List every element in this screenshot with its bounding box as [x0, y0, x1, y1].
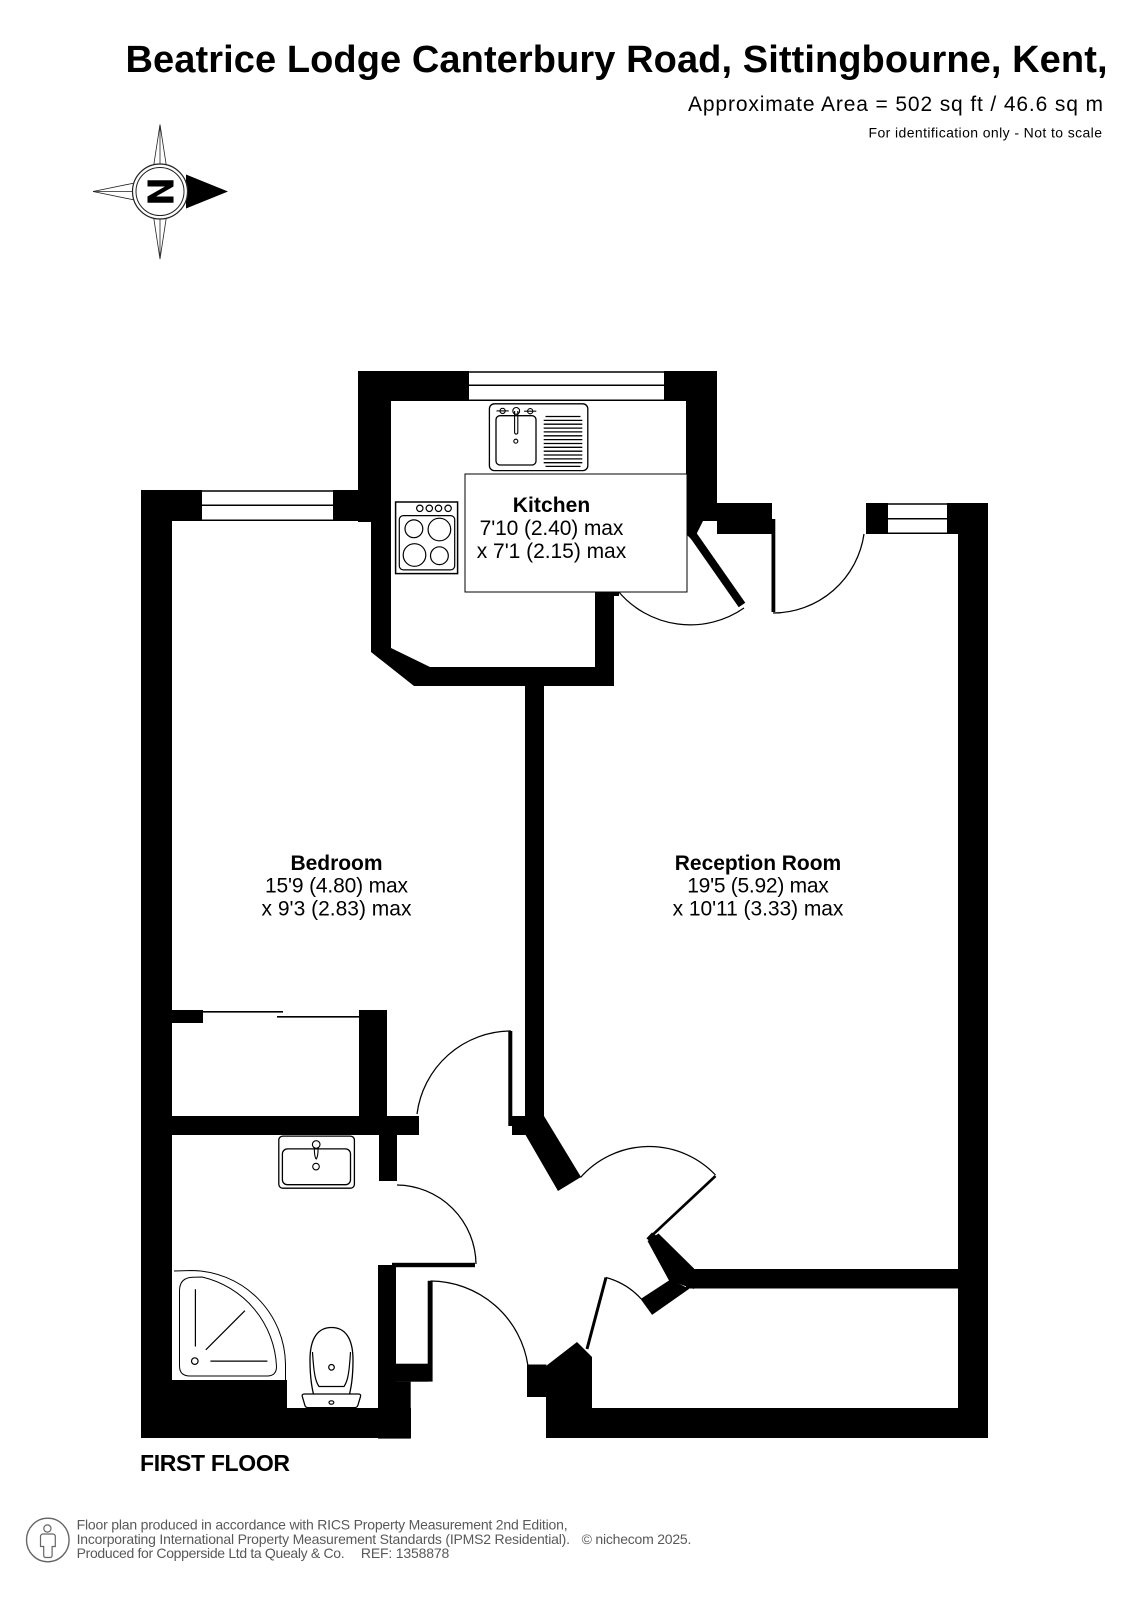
svg-text:7'10 (2.40) max: 7'10 (2.40) max: [480, 517, 624, 540]
svg-text:Produced for Copperside Ltd ta: Produced for Copperside Ltd ta Quealy & …: [77, 1545, 345, 1561]
svg-text:Reception Room: Reception Room: [675, 852, 841, 875]
svg-text:x 9'3 (2.83) max: x 9'3 (2.83) max: [262, 897, 412, 920]
svg-text:15'9 (4.80) max: 15'9 (4.80) max: [265, 875, 409, 898]
svg-text:FIRST FLOOR: FIRST FLOOR: [140, 1450, 290, 1476]
svg-text:For identification only - Not: For identification only - Not to scale: [869, 125, 1103, 141]
svg-text:Approximate Area = 502 sq ft /: Approximate Area = 502 sq ft / 46.6 sq m: [688, 93, 1103, 116]
svg-text:Bedroom: Bedroom: [291, 852, 383, 875]
svg-text:© nichecom 2025.: © nichecom 2025.: [582, 1531, 692, 1547]
svg-text:REF: 1358878: REF: 1358878: [361, 1545, 450, 1561]
svg-text:Kitchen: Kitchen: [513, 494, 591, 517]
svg-text:19'5 (5.92) max: 19'5 (5.92) max: [687, 875, 829, 898]
svg-text:x 7'1 (2.15) max: x 7'1 (2.15) max: [477, 540, 627, 563]
svg-text:Beatrice Lodge Canterbury Road: Beatrice Lodge Canterbury Road, Sittingb…: [126, 39, 1108, 81]
svg-text:x 10'11 (3.33) max: x 10'11 (3.33) max: [673, 897, 844, 920]
